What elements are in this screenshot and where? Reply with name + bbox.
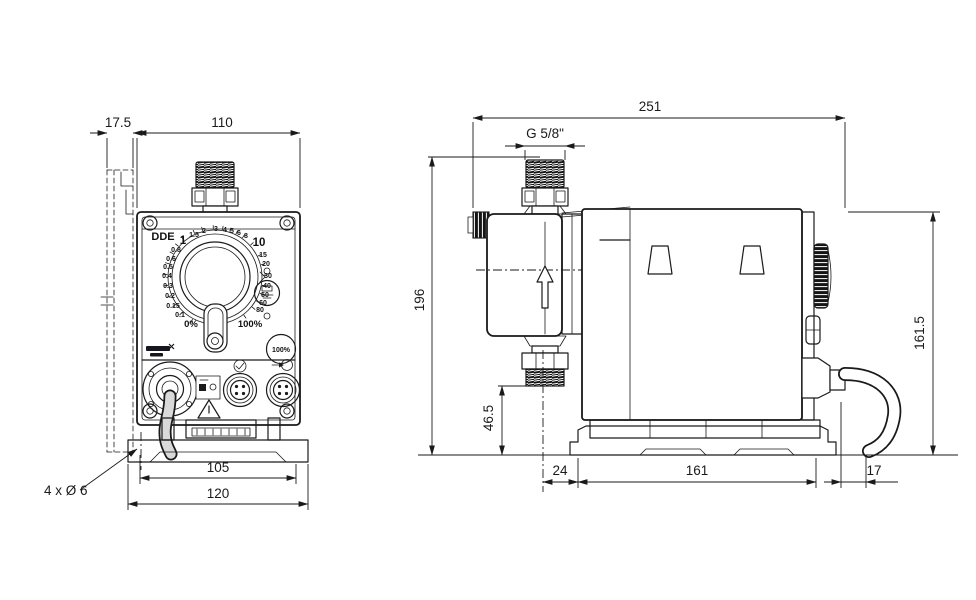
dim-front-width: 110 [211,115,233,130]
dim-housing-height: 161.5 [912,316,927,350]
motor-housing [582,209,802,420]
dosing-head [476,206,584,346]
dial-label: 1.5 [189,232,199,239]
dial-label: 0.6 [166,256,176,263]
side-suction-fitting [522,346,568,386]
dial-label: 80 [256,307,264,314]
dim-hole-span: 105 [207,460,230,475]
dial-label: 20 [262,261,270,268]
dial-label: 0.8 [171,247,181,254]
rating-label [196,376,220,399]
model-label: DDE [151,231,174,243]
dial-label: 5 [230,228,234,235]
dial-label: 10 [253,237,266,249]
dim-total-depth: 251 [639,99,662,114]
dial-label: 2 [202,228,206,235]
dial-max-label: 100% [238,319,263,330]
dim-front-overhang: 24 [552,463,568,478]
dim-mounting-holes-note: 4 x Ø 6 [44,483,88,498]
dim-total-height: 196 [412,289,427,312]
prime-button-label: 100% [272,347,291,354]
dial-label: 8 [244,233,248,240]
dim-connection-thread: G 5/8" [526,126,564,141]
dim-valve-height: 46.5 [481,405,496,431]
dim-base-width: 120 [207,486,230,501]
vent-valve [468,212,489,238]
dial-label: 0.2 [165,293,175,300]
power-cable [165,396,171,454]
front-discharge-fitting [192,162,238,213]
dial-label: 4 [223,227,227,234]
dim-rear-overhang: 17 [866,463,881,478]
dial-label: 0.15 [166,303,180,310]
dial-label: 0.5 [163,264,173,271]
dial-label: 3 [214,226,218,233]
dial-label: 15 [259,252,267,259]
rear-latch [806,316,820,344]
dim-base-length: 161 [686,463,709,478]
dial-label: 0.4 [162,273,172,280]
drawing-canvas: DDE 1 0.8 0.6 0.5 0.4 0.3 0.2 0.15 0.1 0… [0,0,976,600]
dial-label: 0.1 [175,312,185,319]
dial-pointer-lever [204,304,227,352]
dial-label: 40 [263,283,271,290]
click-wheel [814,244,831,308]
dial-min-label: 0% [184,319,198,330]
wall-bracket-hidden-outline [101,170,133,452]
dim-bracket-depth: 17.5 [105,115,131,130]
clamp-rail-hatch [197,429,245,435]
dial-label: 0.3 [163,283,173,290]
dial-label: 1 [180,235,187,247]
dimensional-drawing: DDE 1 0.8 0.6 0.5 0.4 0.3 0.2 0.15 0.1 0… [0,0,976,600]
side-mounting-base [570,420,836,455]
power-cable-side [845,374,894,451]
dial-label: 6 [237,230,241,237]
cable-gland [802,358,845,398]
